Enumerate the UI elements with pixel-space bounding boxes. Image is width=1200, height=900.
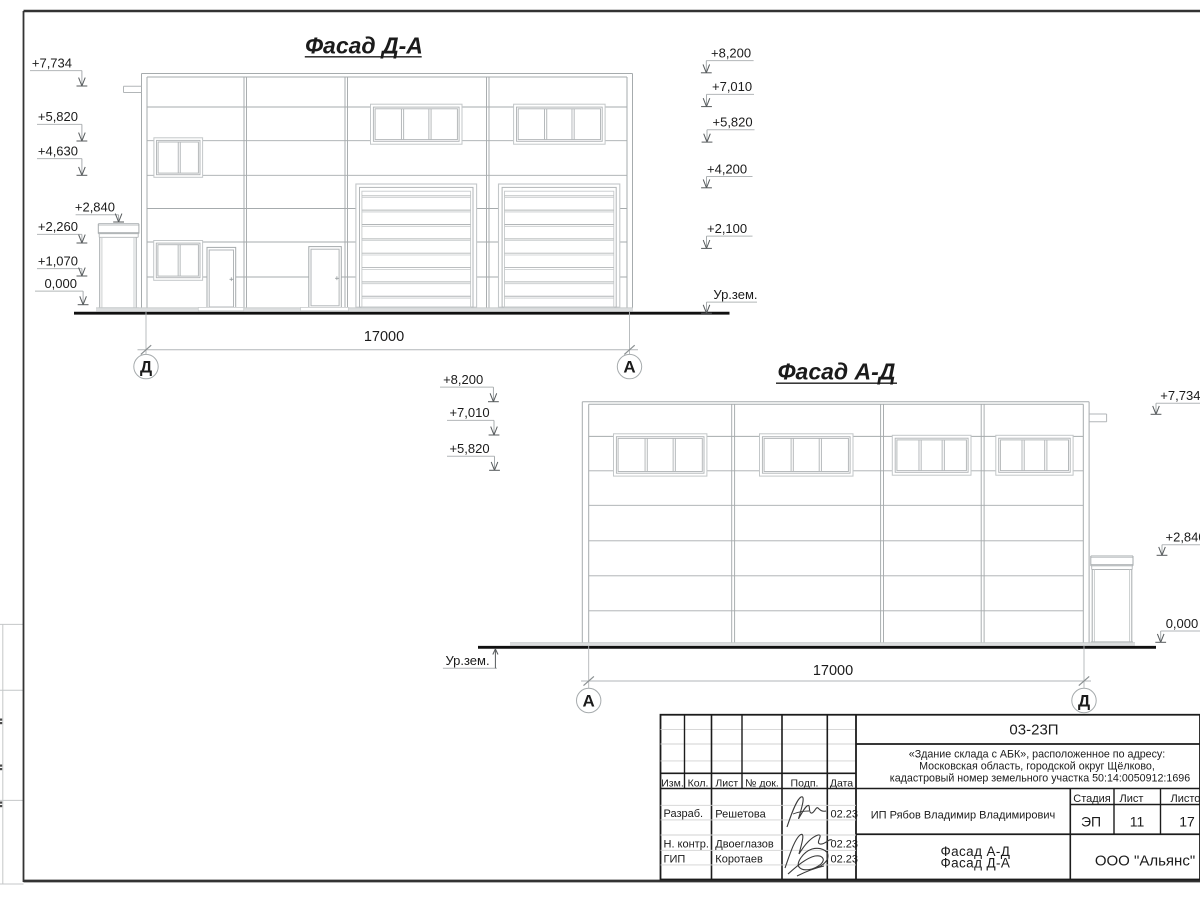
svg-text:Фасад Д-А: Фасад Д-А xyxy=(940,856,1010,871)
svg-text:17000: 17000 xyxy=(364,329,404,345)
svg-text:+7,010: +7,010 xyxy=(449,405,489,420)
svg-text:А: А xyxy=(623,358,635,377)
svg-text:+4,200: +4,200 xyxy=(707,161,747,176)
svg-text:Ур.зем.: Ур.зем. xyxy=(445,653,489,668)
svg-text:Московская область, городской: Московская область, городской округ Щёлк… xyxy=(919,761,1155,773)
svg-text:№ док.: № док. xyxy=(745,777,779,789)
svg-text:Ур.зем.: Ур.зем. xyxy=(713,287,757,302)
svg-text:03-23П: 03-23П xyxy=(1009,722,1058,739)
svg-text:«Здание склада с АБК», располо: «Здание склада с АБК», расположенное по … xyxy=(909,749,1165,761)
svg-text:02.23: 02.23 xyxy=(831,853,859,865)
svg-text:Лист: Лист xyxy=(1120,793,1144,805)
svg-text:ГИП: ГИП xyxy=(664,853,686,865)
svg-text:А: А xyxy=(583,691,595,710)
svg-text:+7,734: +7,734 xyxy=(32,55,72,70)
svg-text:Н. контр.: Н. контр. xyxy=(664,838,709,850)
svg-text:Двоеглазов: Двоеглазов xyxy=(715,838,774,850)
svg-text:02.23: 02.23 xyxy=(831,808,859,820)
svg-text:Кол.: Кол. xyxy=(688,777,709,789)
svg-text:+5,820: +5,820 xyxy=(713,115,753,130)
svg-text:Изм.: Изм. xyxy=(661,777,684,789)
svg-text:ИП Рябов Владимир Владимирович: ИП Рябов Владимир Владимирович xyxy=(871,809,1056,821)
svg-text:Д: Д xyxy=(1078,691,1090,710)
svg-text:Фасад Д-А: Фасад Д-А xyxy=(305,33,423,59)
svg-text:+5,820: +5,820 xyxy=(38,109,78,124)
svg-text:Дата: Дата xyxy=(830,777,853,789)
svg-text:17000: 17000 xyxy=(813,663,853,679)
svg-text:+1,070: +1,070 xyxy=(38,253,78,268)
svg-text:Подп.: Подп. xyxy=(791,777,819,789)
svg-text:02.23: 02.23 xyxy=(831,838,859,850)
svg-text:ООО "Альянс": ООО "Альянс" xyxy=(1095,853,1195,870)
svg-text:Решетова: Решетова xyxy=(715,808,766,820)
svg-text:+8,200: +8,200 xyxy=(711,45,751,60)
svg-text:+5,820: +5,820 xyxy=(449,441,489,456)
svg-text:0,000: 0,000 xyxy=(44,276,77,291)
svg-text:Листов: Листов xyxy=(1171,793,1200,805)
svg-text:+8,200: +8,200 xyxy=(443,372,483,387)
svg-text:Д: Д xyxy=(140,358,152,377)
svg-text:+2,260: +2,260 xyxy=(38,219,78,234)
svg-text:+7,734: +7,734 xyxy=(1160,388,1200,403)
svg-text:+2,840: +2,840 xyxy=(1166,530,1200,545)
svg-text:Стадия: Стадия xyxy=(1073,793,1111,805)
svg-text:Лист: Лист xyxy=(715,777,738,789)
svg-text:17: 17 xyxy=(1179,813,1195,829)
svg-text:0,000: 0,000 xyxy=(1166,616,1199,631)
svg-text:ЭП: ЭП xyxy=(1081,813,1101,829)
svg-text:Разраб.: Разраб. xyxy=(664,808,704,820)
svg-text:Коротаев: Коротаев xyxy=(715,853,763,865)
svg-text:Фасад А-Д: Фасад А-Д xyxy=(778,359,896,385)
svg-text:+2,840: +2,840 xyxy=(75,200,115,215)
svg-text:+7,010: +7,010 xyxy=(712,79,752,94)
svg-text:11: 11 xyxy=(1130,813,1145,829)
svg-text:+4,630: +4,630 xyxy=(38,143,78,158)
svg-text:+2,100: +2,100 xyxy=(707,221,747,236)
svg-text:кадастровый номер земельного у: кадастровый номер земельного участка 50:… xyxy=(890,773,1190,785)
